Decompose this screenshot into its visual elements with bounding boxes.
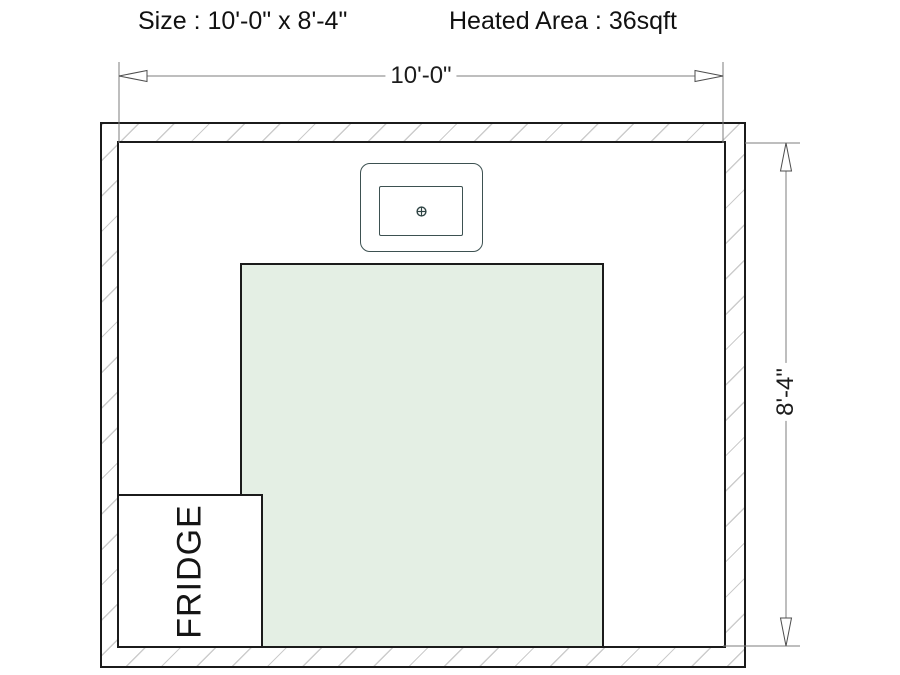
arrow-down-icon (781, 618, 792, 646)
floor-plan: Size : 10'-0" x 8'-4" Heated Area : 36sq… (0, 0, 900, 675)
arrow-left-icon (119, 71, 147, 82)
heated-area-region (240, 263, 604, 646)
sink-drain-icon (415, 205, 428, 218)
width-dimension-label: 10'-0" (385, 62, 456, 90)
size-label: Size : 10'-0" x 8'-4" (138, 7, 347, 36)
fridge-label: FRIDGE (170, 504, 209, 638)
heated-area-label: Heated Area : 36sqft (449, 7, 677, 36)
arrow-right-icon (695, 71, 723, 82)
height-dimension-label: 8'-4" (772, 363, 800, 421)
fridge-box: FRIDGE (117, 494, 263, 648)
sink-fixture (360, 163, 483, 252)
arrow-up-icon (781, 143, 792, 171)
sink-basin (379, 186, 463, 236)
